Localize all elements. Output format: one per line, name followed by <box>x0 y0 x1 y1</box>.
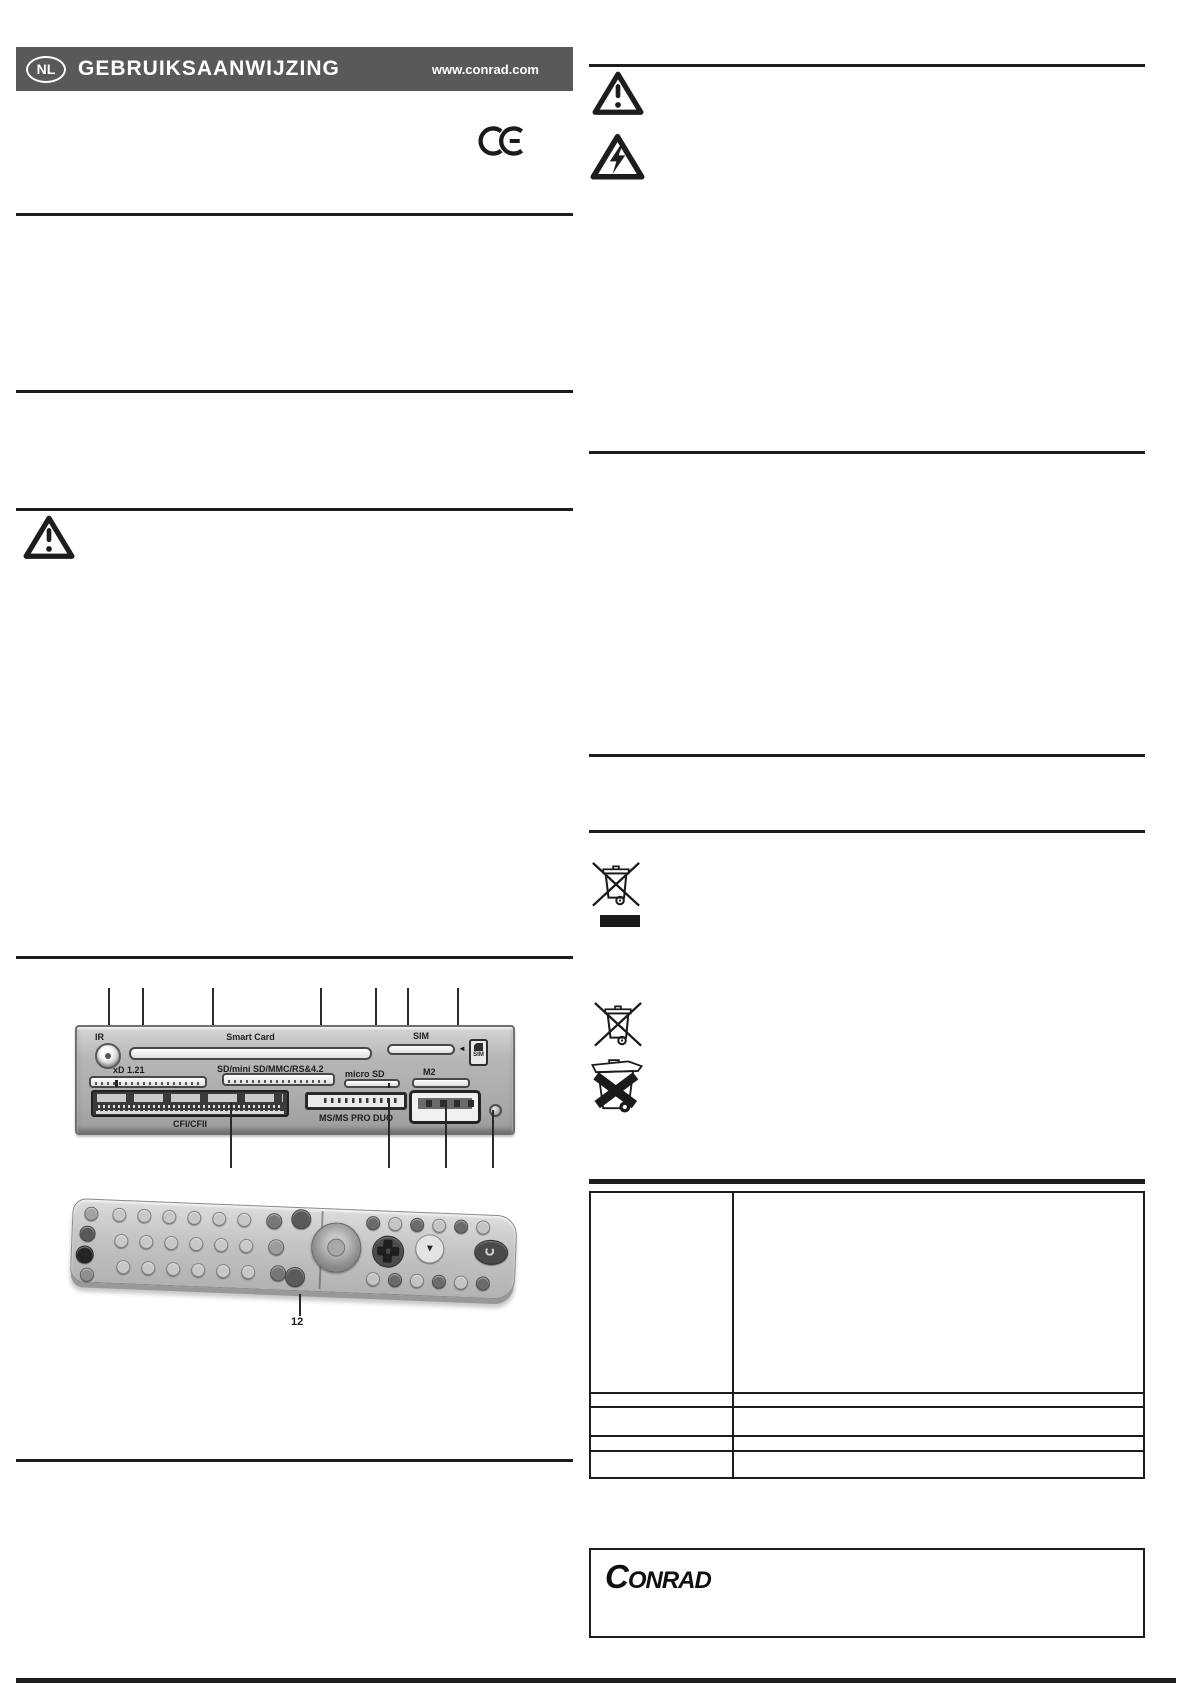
slot-notch <box>388 1083 391 1088</box>
card-reader-figure: IR Smart Card SIM ◄ SIM xD 1.21 SD/mini … <box>75 988 515 1173</box>
sim-arrow-icon: ◄ <box>458 1044 466 1053</box>
table-row-divider <box>591 1406 1143 1408</box>
cf-pins <box>98 1105 282 1108</box>
divider-line <box>589 64 1145 67</box>
cf-base <box>96 1111 284 1115</box>
sim-label: SIM <box>387 1031 455 1041</box>
language-badge: NL <box>26 56 66 83</box>
weee-bin-bar-icon <box>586 856 646 913</box>
sim-card-icon: SIM <box>469 1039 488 1066</box>
card-reader-panel: IR Smart Card SIM ◄ SIM xD 1.21 SD/mini … <box>75 1025 515 1135</box>
micro-sd-slot <box>344 1079 400 1088</box>
callout-line <box>388 1098 390 1168</box>
page-title: GEBRUIKSAANWIJZING <box>78 57 340 81</box>
callout-line <box>299 1294 301 1316</box>
micro-sd-label: micro SD <box>345 1069 385 1079</box>
manual-page: NL GEBRUIKSAANWIJZING www.conrad.com <box>0 0 1192 1685</box>
sd-slot <box>222 1073 335 1086</box>
smart-card-slot <box>129 1047 372 1060</box>
warning-icon <box>23 514 75 566</box>
xd-label: xD 1.21 <box>113 1065 145 1075</box>
divider-line <box>16 508 573 511</box>
divider-line <box>16 956 573 959</box>
high-voltage-icon <box>590 132 645 187</box>
remote-control-figure: ▼ <box>70 1198 518 1300</box>
imprint-box: CONRAD <box>589 1548 1145 1638</box>
slot-notch <box>115 1080 118 1087</box>
conrad-logo: CONRAD <box>605 1558 711 1596</box>
sim-slot <box>387 1044 455 1055</box>
m2-slot <box>412 1078 470 1088</box>
divider-line <box>589 754 1145 757</box>
warning-icon <box>592 70 644 122</box>
header-bar: NL GEBRUIKSAANWIJZING www.conrad.com <box>16 47 573 91</box>
divider-line <box>589 451 1145 454</box>
memory-stick-slot <box>305 1092 407 1110</box>
table-row-divider <box>591 1450 1143 1452</box>
battery-disposal-icon <box>584 1050 650 1121</box>
sim-glyph <box>474 1043 483 1051</box>
ce-mark-icon <box>476 122 526 165</box>
smart-card-label: Smart Card <box>129 1032 372 1042</box>
ms-label: MS/MS PRO DUO <box>305 1113 407 1123</box>
callout-line <box>230 1103 232 1168</box>
ir-label: IR <box>95 1032 104 1042</box>
cf-slot <box>91 1090 289 1117</box>
callout-line <box>492 1110 494 1168</box>
divider-line <box>16 213 573 216</box>
page-bottom-rule <box>16 1678 1176 1683</box>
status-led <box>489 1104 502 1117</box>
cf-label: CFI/CFII <box>91 1119 289 1129</box>
divider-line <box>16 1459 573 1462</box>
divider-line-thick <box>589 1179 1145 1184</box>
remote-callout-label: 12 <box>291 1316 303 1328</box>
weee-black-bar <box>600 915 640 927</box>
cf-tabs <box>97 1094 283 1102</box>
divider-line <box>16 390 573 393</box>
xd-slot <box>89 1076 207 1088</box>
callout-line <box>445 1100 447 1168</box>
table-row-divider <box>591 1392 1143 1394</box>
weee-bin-icon <box>588 996 648 1053</box>
sim-icon-label: SIM <box>471 1052 486 1058</box>
spec-table <box>589 1191 1145 1479</box>
divider-line <box>589 830 1145 833</box>
table-row-divider <box>591 1435 1143 1437</box>
website-url: www.conrad.com <box>432 62 539 77</box>
m2-label: M2 <box>423 1067 436 1077</box>
